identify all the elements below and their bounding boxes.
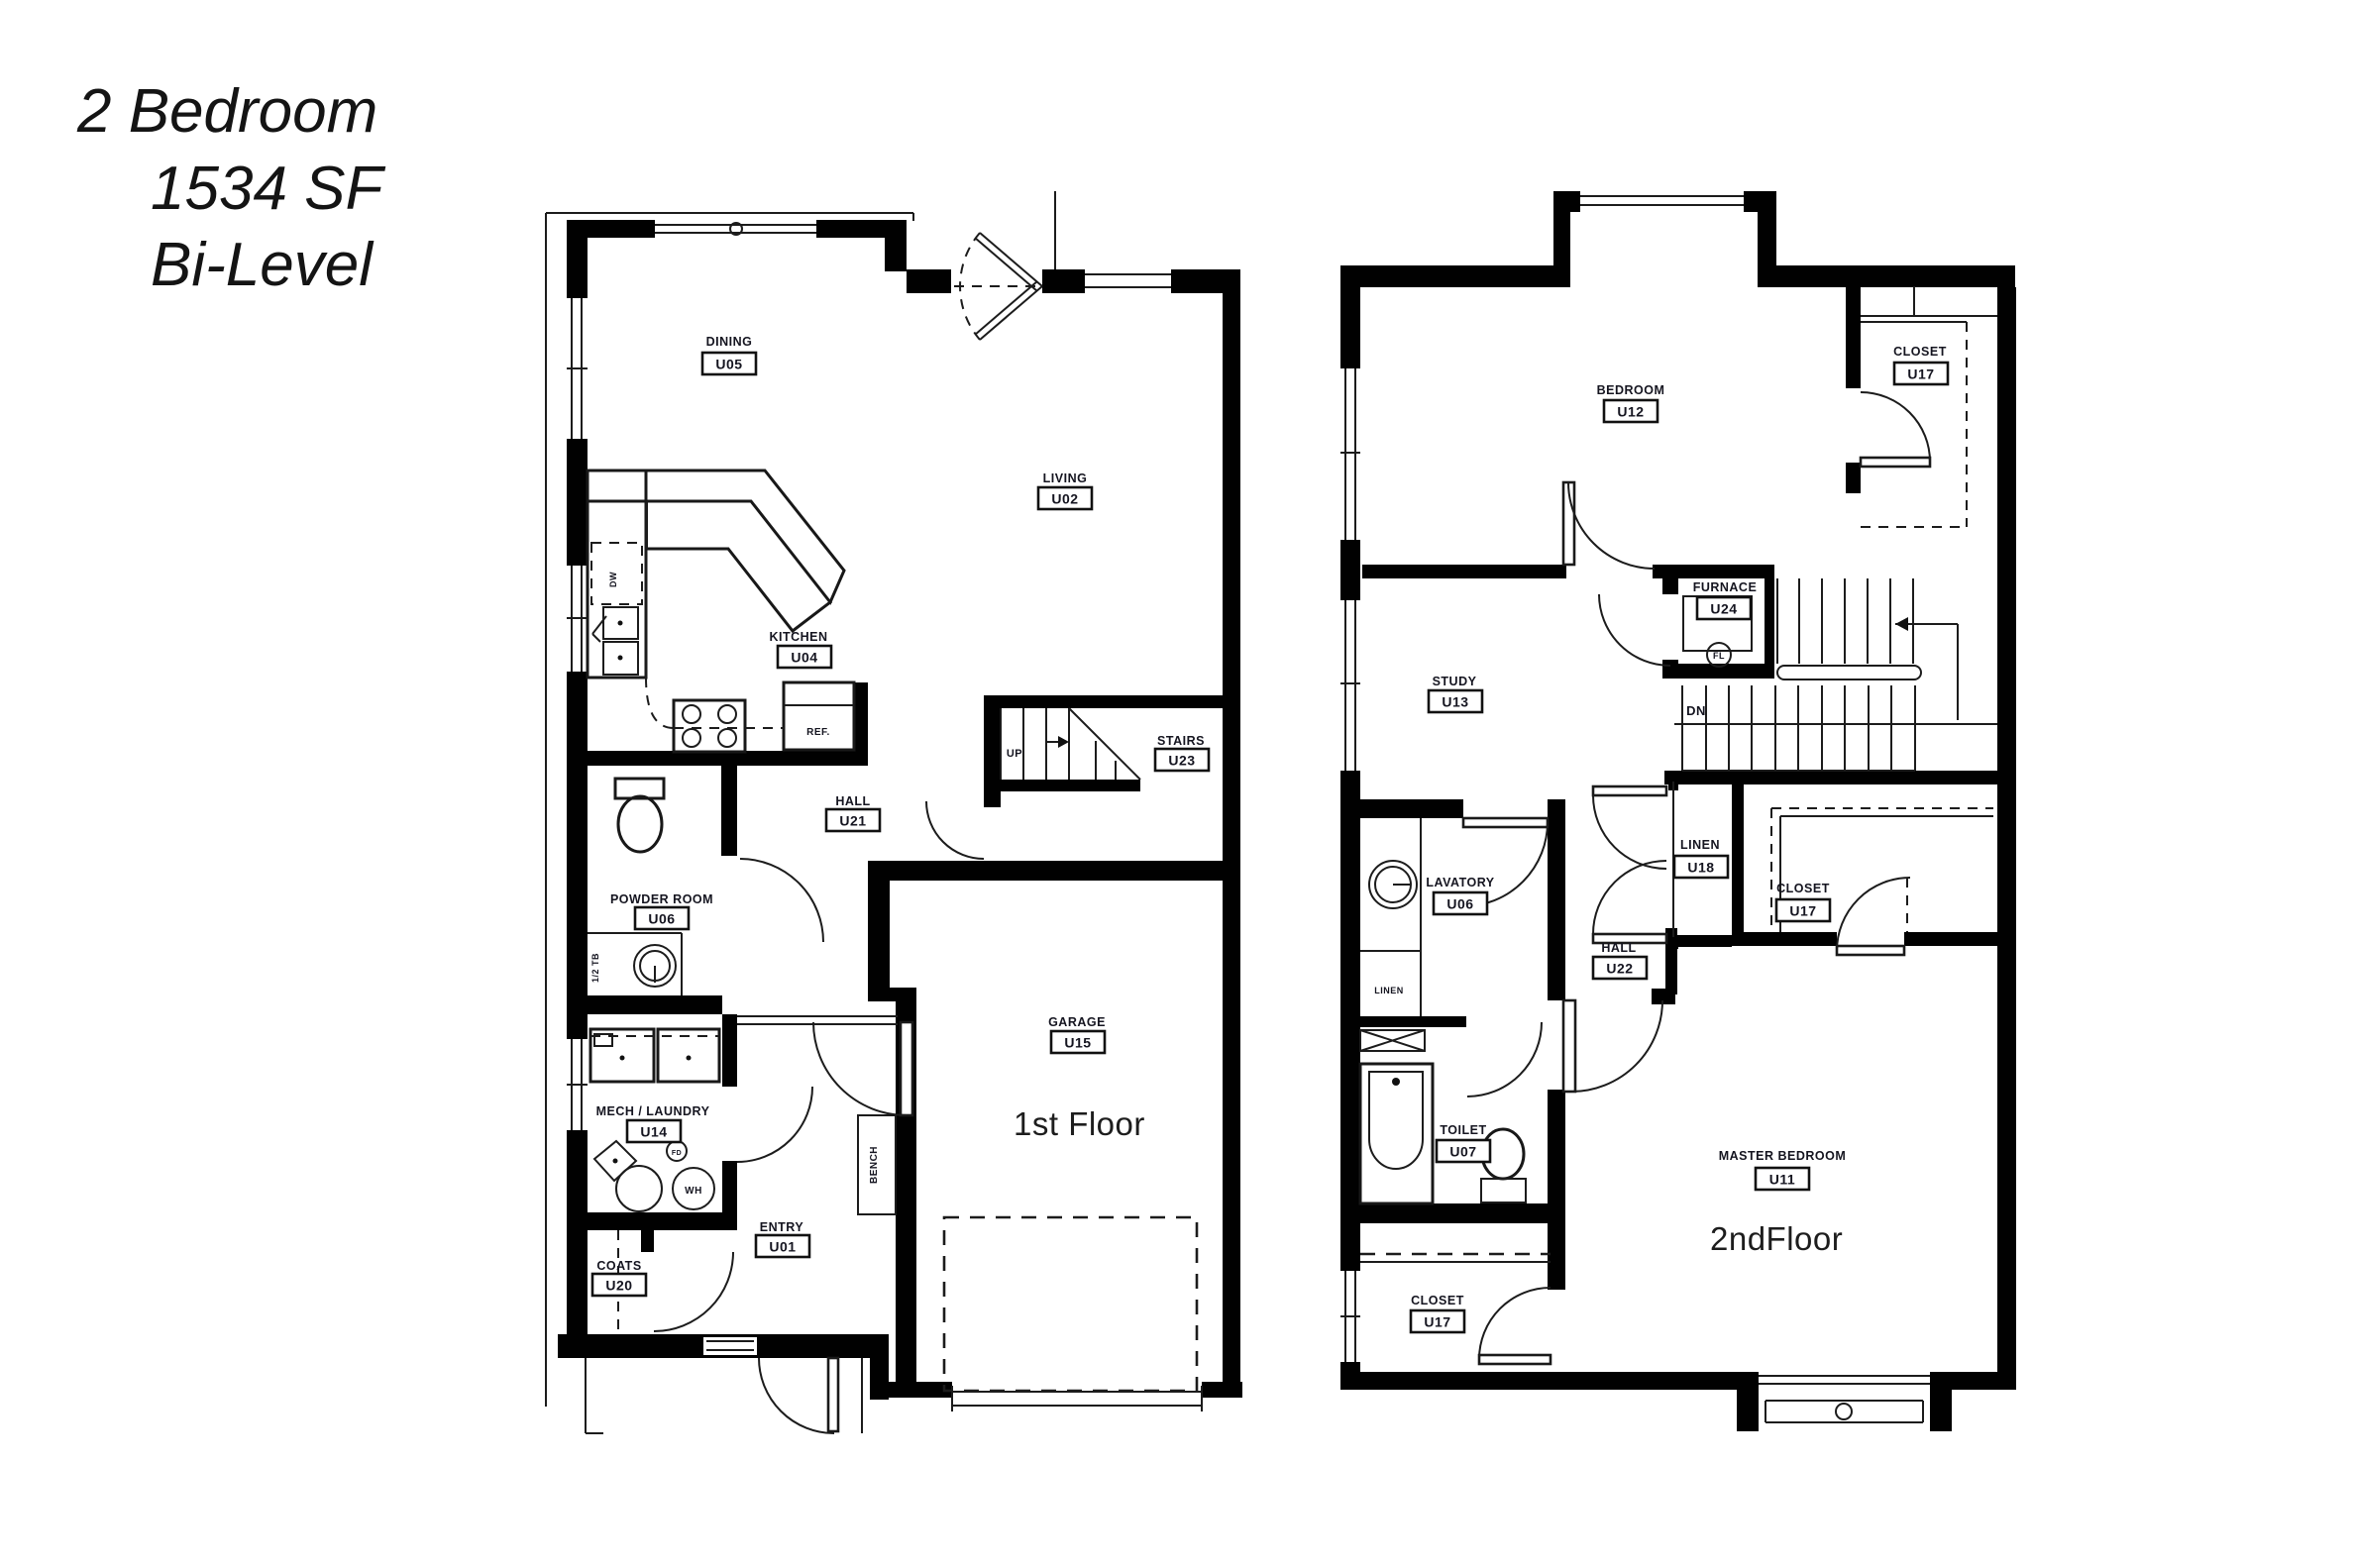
svg-text:U15: U15 [1064, 1035, 1091, 1051]
svg-text:U23: U23 [1168, 753, 1195, 769]
svg-text:1534 SF: 1534 SF [151, 155, 386, 223]
svg-text:MECH / LAUNDRY: MECH / LAUNDRY [596, 1104, 710, 1118]
svg-text:CLOSET: CLOSET [1893, 345, 1947, 359]
svg-text:FL: FL [1713, 651, 1725, 661]
svg-text:U02: U02 [1051, 491, 1078, 507]
svg-text:U14: U14 [640, 1124, 667, 1140]
svg-text:U20: U20 [605, 1278, 632, 1294]
svg-text:WH: WH [685, 1186, 702, 1197]
svg-text:U21: U21 [839, 813, 866, 829]
svg-text:1st Floor: 1st Floor [1014, 1105, 1145, 1142]
svg-text:U05: U05 [715, 357, 742, 372]
svg-text:BEDROOM: BEDROOM [1597, 383, 1665, 397]
svg-text:FD: FD [672, 1150, 682, 1157]
svg-text:CLOSET: CLOSET [1776, 882, 1830, 895]
svg-text:U17: U17 [1424, 1314, 1450, 1330]
svg-text:STUDY: STUDY [1433, 675, 1477, 688]
svg-text:2 Bedroom: 2 Bedroom [76, 77, 377, 146]
svg-text:LINEN: LINEN [1680, 838, 1720, 852]
svg-text:ENTRY: ENTRY [760, 1220, 804, 1234]
svg-text:DN: DN [1686, 703, 1706, 718]
svg-text:HALL: HALL [835, 794, 870, 808]
svg-text:U24: U24 [1710, 601, 1737, 617]
svg-text:LAVATORY: LAVATORY [1426, 876, 1494, 889]
svg-text:GARAGE: GARAGE [1048, 1015, 1106, 1029]
svg-text:LIVING: LIVING [1043, 471, 1088, 485]
svg-text:DINING: DINING [706, 335, 753, 349]
svg-text:STAIRS: STAIRS [1157, 734, 1205, 748]
svg-text:DW: DW [608, 572, 618, 587]
svg-text:FURNACE: FURNACE [1693, 580, 1758, 594]
svg-text:BENCH: BENCH [869, 1146, 880, 1184]
svg-text:U17: U17 [1789, 903, 1816, 919]
svg-text:HALL: HALL [1601, 941, 1636, 955]
svg-text:Bi-Level: Bi-Level [151, 231, 374, 299]
svg-text:MASTER BEDROOM: MASTER BEDROOM [1719, 1149, 1847, 1163]
svg-text:U06: U06 [648, 911, 675, 927]
svg-text:POWDER ROOM: POWDER ROOM [610, 892, 713, 906]
svg-text:U01: U01 [769, 1239, 796, 1255]
svg-text:KITCHEN: KITCHEN [769, 630, 827, 644]
svg-text:U11: U11 [1769, 1172, 1795, 1188]
svg-text:COATS: COATS [596, 1259, 641, 1273]
svg-text:U13: U13 [1442, 694, 1468, 710]
svg-text:CLOSET: CLOSET [1411, 1294, 1464, 1307]
svg-text:REF.: REF. [806, 727, 830, 738]
svg-text:U12: U12 [1617, 404, 1644, 420]
svg-text:U07: U07 [1449, 1144, 1476, 1160]
svg-text:U17: U17 [1907, 366, 1934, 382]
svg-text:2ndFloor: 2ndFloor [1710, 1220, 1843, 1257]
svg-text:U22: U22 [1606, 961, 1633, 977]
svg-text:U04: U04 [791, 650, 817, 666]
svg-text:U18: U18 [1687, 860, 1714, 876]
svg-text:1/2 TB: 1/2 TB [590, 953, 600, 983]
svg-text:UP: UP [1007, 748, 1022, 760]
svg-text:LINEN: LINEN [1374, 986, 1404, 995]
svg-text:U06: U06 [1446, 896, 1473, 912]
svg-text:TOILET: TOILET [1440, 1123, 1486, 1137]
